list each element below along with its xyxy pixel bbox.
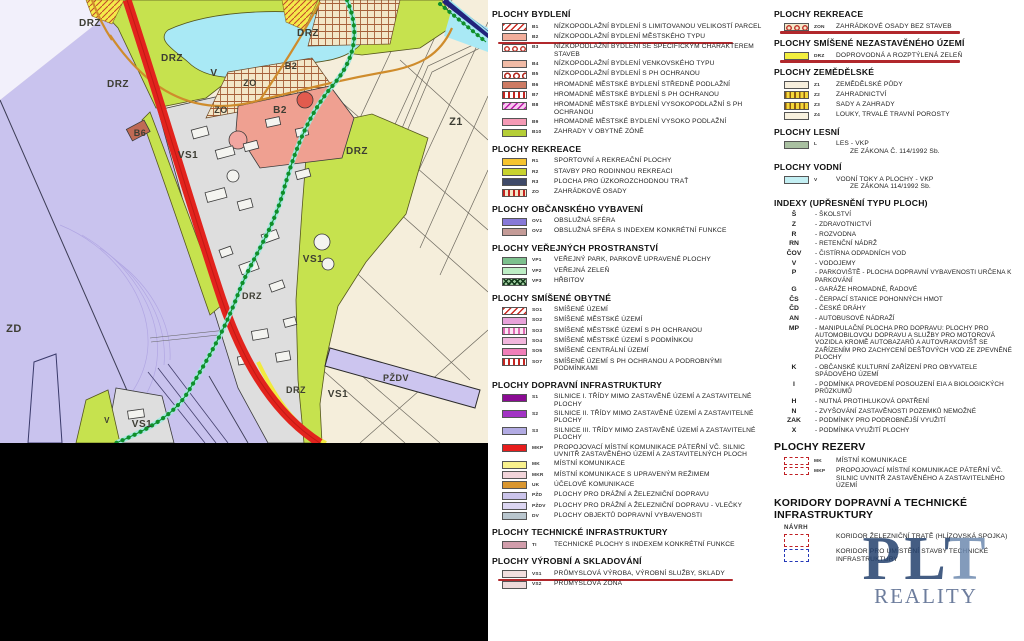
legend-item-OV2: OV2OBSLUŽNÁ SFÉRA S INDEXEM KONKRÉTNÍ FU… bbox=[502, 227, 764, 236]
legend-label: ZAHRÁDKOVÉ OSADY BEZ STAVEB bbox=[836, 23, 952, 31]
index-label: - PODMÍNKY PRO PODROBNĚJŠÍ VYUŽITÍ bbox=[815, 417, 946, 424]
legend-item-VP3: VP3HŘBITOV bbox=[502, 277, 764, 286]
legend-item-V: VVODNÍ TOKY A PLOCHY - VKPZE ZÁKONA 114/… bbox=[784, 176, 1018, 191]
legend-label: SMÍŠENÉ MĚSTSKÉ ÚZEMÍ S PH OCHRANOU bbox=[554, 327, 702, 335]
map-label-DRZ: DRZ bbox=[242, 291, 262, 301]
legend-index-item: N- ZVYŠOVÁNÍ ZASTAVĚNOSTI POZEMKŮ NEMOŽN… bbox=[780, 408, 1018, 415]
index-label: - PODMÍNKA VYUŽITÍ PLOCHY bbox=[815, 427, 909, 434]
legend-code: SO3 bbox=[532, 329, 549, 334]
legend-item-koridor: KORIDOR PRO UMÍSTĚNÍ STAVBY TECHNICKÉ IN… bbox=[784, 548, 1018, 563]
round-structure bbox=[297, 92, 313, 108]
legend-item-B8: B8HROMADNÉ MĚSTSKÉ BYDLENÍ VYSOKOPODLAŽN… bbox=[502, 101, 764, 116]
legend-item-B1: B1NÍZKOPODLAŽNÍ BYDLENÍ S LIMITOVANOU VE… bbox=[502, 23, 764, 32]
legend-column-1: PLOCHY BYDLENÍB1NÍZKOPODLAŽNÍ BYDLENÍ S … bbox=[488, 0, 768, 641]
legend-swatch bbox=[502, 481, 527, 489]
map-label-ZD: ZD bbox=[6, 323, 22, 335]
legend-label: LOUKY, TRVALÉ TRAVNÍ POROSTY bbox=[836, 111, 950, 119]
index-label: - VODOJEMY bbox=[815, 260, 856, 267]
legend-label: OBSLUŽNÁ SFÉRA S INDEXEM KONKRÉTNÍ FUNKC… bbox=[554, 227, 727, 235]
legend-item-ZO: ZOZAHRÁDKOVÉ OSADY bbox=[502, 188, 764, 197]
legend-code: Z4 bbox=[814, 113, 831, 118]
legend-code: OV1 bbox=[532, 219, 549, 224]
index-code: H bbox=[780, 398, 808, 405]
legend-note: NÁVRH bbox=[784, 524, 1018, 531]
index-label: - ROZVODNA bbox=[815, 231, 856, 238]
index-code: K bbox=[780, 364, 808, 379]
legend-swatch bbox=[784, 467, 809, 475]
legend-swatch bbox=[784, 549, 809, 562]
legend-swatch bbox=[502, 44, 527, 52]
legend-item-Z2: Z2ZAHRADNICTVÍ bbox=[784, 91, 1018, 100]
legend-index-item: X- PODMÍNKA VYUŽITÍ PLOCHY bbox=[780, 427, 1018, 434]
legend-code: TI bbox=[532, 543, 549, 548]
legend-swatch bbox=[502, 317, 527, 325]
legend-code: SO4 bbox=[532, 339, 549, 344]
index-code: Z bbox=[780, 221, 808, 228]
legend-label: PRŮMYSLOVÁ VÝROBA, VÝROBNÍ SLUŽBY, SKLAD… bbox=[554, 570, 725, 578]
index-label: - OBČANSKÉ KULTURNÍ ZAŘÍZENÍ PRO OBYVATE… bbox=[815, 364, 1015, 379]
legend-label: SMÍŠENÉ MĚSTSKÉ ÚZEMÍ bbox=[554, 316, 643, 324]
legend-code: SO7 bbox=[532, 360, 549, 365]
legend-item-B3: B3NÍZKOPODLAŽNÍ BYDLENÍ SE SPECIFICKÝM C… bbox=[502, 43, 764, 58]
legend-code: MKR bbox=[532, 473, 549, 478]
legend-item-DRZ: DRZDOPROVODNÁ A ROZPTÝLENÁ ZELEŇ bbox=[784, 52, 1018, 61]
legend-section-title: PLOCHY VODNÍ bbox=[774, 162, 1018, 172]
legend-label: ÚČELOVÉ KOMUNIKACE bbox=[554, 481, 634, 489]
legend-item-B4: B4NÍZKOPODLAŽNÍ BYDLENÍ VENKOVSKÉHO TYPU bbox=[502, 60, 764, 69]
legend-swatch bbox=[502, 444, 527, 452]
legend-code: B7 bbox=[532, 93, 549, 98]
legend-section: PLOCHY SMÍŠENÉ OBYTNÉSO1SMÍŠENÉ ÚZEMÍSO2… bbox=[492, 293, 764, 373]
legend-swatch bbox=[502, 410, 527, 418]
legend-swatch bbox=[784, 176, 809, 184]
legend-label: NÍZKOPODLAŽNÍ BYDLENÍ MĚSTSKÉHO TYPU bbox=[554, 33, 705, 41]
legend-swatch bbox=[502, 189, 527, 197]
index-label: - MANIPULAČNÍ PLOCHA PRO DOPRAVU: PLOCHY… bbox=[815, 325, 1015, 362]
legend-code: MKP bbox=[814, 469, 831, 474]
legend-label: ZAHRADNICTVÍ bbox=[836, 91, 887, 99]
legend-section: PLOCHY REKREACER1SPORTOVNÍ A REKREAČNÍ P… bbox=[492, 144, 764, 197]
legend-label: LES - VKPZE ZÁKONA Č. 114/1992 Sb. bbox=[836, 140, 940, 155]
legend-section-title: PLOCHY VÝROBNÍ A SKLADOVÁNÍ bbox=[492, 556, 764, 566]
legend-index-item: I- PODMÍNKA PROVEDENÍ POSOUZENÍ EIA A BI… bbox=[780, 381, 1018, 396]
map-label-VS1: VS1 bbox=[132, 419, 152, 430]
legend-swatch bbox=[784, 91, 809, 99]
index-code: X bbox=[780, 427, 808, 434]
legend-code: VP1 bbox=[532, 258, 549, 263]
legend-swatch bbox=[502, 541, 527, 549]
legend-section-title: PLOCHY BYDLENÍ bbox=[492, 9, 764, 19]
legend-label: SMÍŠENÉ CENTRÁLNÍ ÚZEMÍ bbox=[554, 347, 649, 355]
legend-index-item: H- NUTNÁ PROTIHLUKOVÁ OPATŘENÍ bbox=[780, 398, 1018, 405]
legend-swatch bbox=[502, 492, 527, 500]
legend-swatch bbox=[502, 358, 527, 366]
index-label: - PARKOVIŠTĚ - PLOCHA DOPRAVNÍ VYBAVENOS… bbox=[815, 269, 1015, 284]
legend-item-PŽDV: PŽDVPLOCHY PRO DRÁŽNÍ A ŽELEZNIČNÍ DOPRA… bbox=[502, 502, 764, 511]
index-label: - ZVYŠOVÁNÍ ZASTAVĚNOSTI POZEMKŮ NEMOŽNÉ bbox=[815, 408, 976, 415]
index-label: - ČERPACÍ STANICE POHONNÝCH HMOT bbox=[815, 296, 943, 303]
legend-index-item: Š- ŠKOLSTVÍ bbox=[780, 211, 1018, 218]
legend-label: HROMADNÉ MĚSTSKÉ BYDLENÍ STŘEDNĚ PODLAŽN… bbox=[554, 81, 730, 89]
legend-swatch bbox=[784, 23, 809, 31]
legend-index-item: P- PARKOVIŠTĚ - PLOCHA DOPRAVNÍ VYBAVENO… bbox=[780, 269, 1018, 284]
legend-swatch bbox=[502, 327, 527, 335]
legend-code: SO2 bbox=[532, 318, 549, 323]
legend-swatch bbox=[502, 570, 527, 578]
legend-section: INDEXY (UPŘESNĚNÍ TYPU PLOCH)Š- ŠKOLSTVÍ… bbox=[774, 198, 1018, 434]
legend-item-S2: S2SILNICE II. TŘÍDY MIMO ZASTAVĚNÉ ÚZEMÍ… bbox=[502, 410, 764, 425]
legend-item-S1: S1SILNICE I. TŘÍDY MIMO ZASTAVĚNÉ ÚZEMÍ … bbox=[502, 393, 764, 408]
legend-label: SMÍŠENÉ MĚSTSKÉ ÚZEMÍ S PODMÍNKOU bbox=[554, 337, 693, 345]
zoning-plan-screenshot: DRZDRZDRZDRZDRZDRZDRZVVZOZOB2B2B6Z1ZDVS1… bbox=[0, 0, 1024, 641]
legend-label: NÍZKOPODLAŽNÍ BYDLENÍ S PH OCHRANOU bbox=[554, 70, 700, 78]
legend-item-SO4: SO4SMÍŠENÉ MĚSTSKÉ ÚZEMÍ S PODMÍNKOU bbox=[502, 337, 764, 346]
legend-code: B1 bbox=[532, 25, 549, 30]
legend-index-item: ČS- ČERPACÍ STANICE POHONNÝCH HMOT bbox=[780, 296, 1018, 303]
legend-index-item: Z- ZDRAVOTNICTVÍ bbox=[780, 221, 1018, 228]
map-label-B6: B6 bbox=[134, 128, 147, 138]
legend-label: HŘBITOV bbox=[554, 277, 584, 285]
legend-item-MK: MKMÍSTNÍ KOMUNIKACE bbox=[784, 457, 1018, 466]
legend-code: PŽDV bbox=[532, 504, 549, 509]
legend-item-VP2: VP2VEŘEJNÁ ZELEŇ bbox=[502, 267, 764, 276]
map-label-B2: B2 bbox=[273, 105, 287, 116]
index-code: ZAK bbox=[780, 417, 808, 424]
legend-item-Z3: Z3SADY A ZAHRADY bbox=[784, 101, 1018, 110]
legend-label: SMÍŠENÉ ÚZEMÍ bbox=[554, 306, 608, 314]
legend-section: PLOCHY OBČANSKÉHO VYBAVENÍOV1OBSLUŽNÁ SF… bbox=[492, 204, 764, 236]
legend-section-title: PLOCHY REKREACE bbox=[492, 144, 764, 154]
legend-item-Z4: Z4LOUKY, TRVALÉ TRAVNÍ POROSTY bbox=[784, 111, 1018, 120]
legend-label: PROPOJOVACÍ MÍSTNÍ KOMUNIKACE PÁTEŘNÍ VČ… bbox=[554, 444, 764, 459]
legend-section: KORIDORY DOPRAVNÍ A TECHNICKÉ INFRASTRUK… bbox=[774, 497, 1018, 564]
legend-code: R3 bbox=[532, 180, 549, 185]
legend-section-title: PLOCHY REZERV bbox=[774, 441, 1018, 453]
legend-item-R3: R3PLOCHA PRO ÚZKOROZCHODNOU TRAŤ bbox=[502, 178, 764, 187]
legend-label: PLOCHY OBJEKTŮ DOPRAVNÍ VYBAVENOSTI bbox=[554, 512, 702, 520]
legend-label: ZAHRÁDKOVÉ OSADY bbox=[554, 188, 627, 196]
map-label-DRZ: DRZ bbox=[79, 18, 101, 29]
legend-code: SO5 bbox=[532, 349, 549, 354]
legend-item-S3: S3SILNICE III. TŘÍDY MIMO ZASTAVĚNÉ ÚZEM… bbox=[502, 427, 764, 442]
legend-code: VS2 bbox=[532, 582, 549, 587]
legend-label: DOPROVODNÁ A ROZPTÝLENÁ ZELEŇ bbox=[836, 52, 962, 60]
index-code: AN bbox=[780, 315, 808, 322]
legend-swatch bbox=[502, 168, 527, 176]
legend-code: B2 bbox=[532, 35, 549, 40]
legend-label: SMÍŠENÉ ÚZEMÍ S PH OCHRANOU A PODROBNÝMI… bbox=[554, 358, 764, 373]
legend-code: VP3 bbox=[532, 279, 549, 284]
legend-swatch bbox=[502, 581, 527, 589]
legend-index-item: G- GARÁŽE HROMADNÉ, ŘADOVÉ bbox=[780, 286, 1018, 293]
map-label-DRZ: DRZ bbox=[346, 146, 368, 157]
legend-label: HROMADNÉ MĚSTSKÉ BYDLENÍ S PH OCHRANOU bbox=[554, 91, 719, 99]
index-label: - RETENČNÍ NÁDRŽ bbox=[815, 240, 877, 247]
legend-section: PLOCHY DOPRAVNÍ INFRASTRUKTURYS1SILNICE … bbox=[492, 380, 764, 521]
legend-swatch bbox=[502, 394, 527, 402]
legend-label: VODNÍ TOKY A PLOCHY - VKPZE ZÁKONA 114/1… bbox=[836, 176, 933, 191]
legend-section: PLOCHY REKREACEZONZAHRÁDKOVÉ OSADY BEZ S… bbox=[774, 9, 1018, 31]
map-label-DRZ: DRZ bbox=[161, 53, 183, 64]
legend-code: B8 bbox=[532, 103, 549, 108]
legend-label: SILNICE II. TŘÍDY MIMO ZASTAVĚNÉ ÚZEMÍ A… bbox=[554, 410, 764, 425]
legend-swatch bbox=[502, 33, 527, 41]
legend-swatch bbox=[784, 52, 809, 60]
legend-swatch bbox=[502, 71, 527, 79]
legend-label: PROPOJOVACÍ MÍSTNÍ KOMUNIKACE PÁTEŘNÍ VČ… bbox=[836, 467, 1018, 490]
index-code: ČS bbox=[780, 296, 808, 303]
legend-section-title: PLOCHY VEŘEJNÝCH PROSTRANSTVÍ bbox=[492, 243, 764, 253]
legend-swatch bbox=[784, 141, 809, 149]
legend-swatch bbox=[502, 158, 527, 166]
legend-index-item: K- OBČANSKÉ KULTURNÍ ZAŘÍZENÍ PRO OBYVAT… bbox=[780, 364, 1018, 379]
legend-label: ZEMĚDĚLSKÉ PŮDY bbox=[836, 81, 903, 89]
legend-code: MK bbox=[814, 459, 831, 464]
index-code: V bbox=[780, 260, 808, 267]
index-code: R bbox=[780, 231, 808, 238]
legend-item-B5: B5NÍZKOPODLAŽNÍ BYDLENÍ S PH OCHRANOU bbox=[502, 70, 764, 79]
map-label-B2: B2 bbox=[285, 61, 298, 71]
legend-item-MK: MKMÍSTNÍ KOMUNIKACE bbox=[502, 460, 764, 469]
legend-code: R1 bbox=[532, 159, 549, 164]
legend-item-PŽD: PŽDPLOCHY PRO DRÁŽNÍ A ŽELEZNIČNÍ DOPRAV… bbox=[502, 491, 764, 500]
legend-label: SADY A ZAHRADY bbox=[836, 101, 895, 109]
legend-code: B3 bbox=[532, 45, 549, 50]
index-label: - ČESKÉ DRÁHY bbox=[815, 305, 866, 312]
legend-section-title: PLOCHY OBČANSKÉHO VYBAVENÍ bbox=[492, 204, 764, 214]
legend-item-koridor: KORIDOR ŽELEZNIČNÍ TRATĚ (HLÍZOVSKÁ SPOJ… bbox=[784, 533, 1018, 547]
legend-code: S3 bbox=[532, 429, 549, 434]
legend-item-OV1: OV1OBSLUŽNÁ SFÉRA bbox=[502, 217, 764, 226]
legend-code: Z3 bbox=[814, 103, 831, 108]
legend-swatch bbox=[502, 471, 527, 479]
legend-item-VS2: VS2PRŮMYSLOVÁ ZÓNA bbox=[502, 580, 764, 589]
legend-swatch bbox=[502, 91, 527, 99]
legend-swatch bbox=[502, 512, 527, 520]
legend-swatch bbox=[502, 427, 527, 435]
index-label: - AUTOBUSOVÉ NÁDRAŽÍ bbox=[815, 315, 895, 322]
legend-label: ZAHRADY V OBYTNÉ ZÓNĚ bbox=[554, 128, 644, 136]
legend-swatch bbox=[502, 267, 527, 275]
legend-item-SO2: SO2SMÍŠENÉ MĚSTSKÉ ÚZEMÍ bbox=[502, 316, 764, 325]
legend-code: DRZ bbox=[814, 54, 831, 59]
legend-index-item: RN- RETENČNÍ NÁDRŽ bbox=[780, 240, 1018, 247]
index-code: I bbox=[780, 381, 808, 396]
legend-label: NÍZKOPODLAŽNÍ BYDLENÍ S LIMITOVANOU VELI… bbox=[554, 23, 762, 31]
legend-index-item: MP- MANIPULAČNÍ PLOCHA PRO DOPRAVU: PLOC… bbox=[780, 325, 1018, 362]
legend-item-B6: B6HROMADNÉ MĚSTSKÉ BYDLENÍ STŘEDNĚ PODLA… bbox=[502, 81, 764, 90]
legend-item-DV: DVPLOCHY OBJEKTŮ DOPRAVNÍ VYBAVENOSTI bbox=[502, 512, 764, 521]
legend-column-2: PLOCHY REKREACEZONZAHRÁDKOVÉ OSADY BEZ S… bbox=[768, 0, 1024, 641]
legend-code: PŽD bbox=[532, 493, 549, 498]
legend-code: Z1 bbox=[814, 83, 831, 88]
legend-item-SO3: SO3SMÍŠENÉ MĚSTSKÉ ÚZEMÍ S PH OCHRANOU bbox=[502, 327, 764, 336]
map-label-PŽDV: PŽDV bbox=[383, 372, 409, 383]
legend-swatch bbox=[502, 102, 527, 110]
legend-item-R1: R1SPORTOVNÍ A REKREAČNÍ PLOCHY bbox=[502, 157, 764, 166]
legend-label: PLOCHA PRO ÚZKOROZCHODNOU TRAŤ bbox=[554, 178, 688, 186]
legend-code: VS1 bbox=[532, 572, 549, 577]
legend-label: SILNICE III. TŘÍDY MIMO ZASTAVĚNÉ ÚZEMÍ … bbox=[554, 427, 764, 442]
legend-label: TECHNICKÉ PLOCHY S INDEXEM KONKRÉTNÍ FUN… bbox=[554, 541, 735, 549]
index-code: RN bbox=[780, 240, 808, 247]
legend-code: ZO bbox=[532, 190, 549, 195]
index-code: MP bbox=[780, 325, 808, 362]
legend-section: PLOCHY VEŘEJNÝCH PROSTRANSTVÍVP1VEŘEJNÝ … bbox=[492, 243, 764, 286]
legend-code: V bbox=[814, 178, 831, 183]
legend-swatch bbox=[784, 81, 809, 89]
legend-label: VEŘEJNÁ ZELEŇ bbox=[554, 267, 609, 275]
legend-swatch bbox=[784, 457, 809, 465]
legend-swatch bbox=[502, 81, 527, 89]
legend-label: OBSLUŽNÁ SFÉRA bbox=[554, 217, 615, 225]
legend-code: L bbox=[814, 142, 831, 147]
legend-item-TI: TITECHNICKÉ PLOCHY S INDEXEM KONKRÉTNÍ F… bbox=[502, 541, 764, 550]
legend-item-UK: UKÚČELOVÉ KOMUNIKACE bbox=[502, 481, 764, 490]
legend-section-title: PLOCHY TECHNICKÉ INFRASTRUKTURY bbox=[492, 527, 764, 537]
legend-swatch bbox=[502, 218, 527, 226]
legend-item-SO1: SO1SMÍŠENÉ ÚZEMÍ bbox=[502, 306, 764, 315]
legend-code: S2 bbox=[532, 412, 549, 417]
legend-item-ZON: ZONZAHRÁDKOVÉ OSADY BEZ STAVEB bbox=[784, 23, 1018, 32]
legend-label: PRŮMYSLOVÁ ZÓNA bbox=[554, 580, 622, 588]
legend-code: B4 bbox=[532, 62, 549, 67]
index-code: ČOV bbox=[780, 250, 808, 257]
legend-section-title: PLOCHY LESNÍ bbox=[774, 127, 1018, 137]
legend-swatch bbox=[502, 278, 527, 286]
legend-code: S1 bbox=[532, 395, 549, 400]
legend-item-L: LLES - VKPZE ZÁKONA Č. 114/1992 Sb. bbox=[784, 140, 1018, 155]
index-label: - ŠKOLSTVÍ bbox=[815, 211, 851, 218]
legend-section: PLOCHY LESNÍLLES - VKPZE ZÁKONA Č. 114/1… bbox=[774, 127, 1018, 156]
legend-swatch bbox=[502, 178, 527, 186]
legend-code: B5 bbox=[532, 72, 549, 77]
legend-swatch bbox=[502, 461, 527, 469]
legend-section: PLOCHY VÝROBNÍ A SKLADOVÁNÍVS1PRŮMYSLOVÁ… bbox=[492, 556, 764, 588]
legend-section-title: INDEXY (UPŘESNĚNÍ TYPU PLOCH) bbox=[774, 198, 1018, 208]
legend-item-R2: R2STAVBY PRO RODINNOU REKREACI bbox=[502, 168, 764, 177]
legend-swatch bbox=[502, 257, 527, 265]
legend-code: MK bbox=[532, 462, 549, 467]
index-label: - NUTNÁ PROTIHLUKOVÁ OPATŘENÍ bbox=[815, 398, 929, 405]
index-code: N bbox=[780, 408, 808, 415]
legend-code: ZON bbox=[814, 25, 831, 30]
legend-label: MÍSTNÍ KOMUNIKACE S UPRAVENÝM REŽIMEM bbox=[554, 471, 710, 479]
legend-label: SILNICE I. TŘÍDY MIMO ZASTAVĚNÉ ÚZEMÍ A … bbox=[554, 393, 764, 408]
legend-index-item: AN- AUTOBUSOVÉ NÁDRAŽÍ bbox=[780, 315, 1018, 322]
legend-item-VP1: VP1VEŘEJNÝ PARK, PARKOVĚ UPRAVENÉ PLOCHY bbox=[502, 256, 764, 265]
legend-swatch bbox=[502, 23, 527, 31]
legend-swatch bbox=[502, 307, 527, 315]
map-label-VS1: VS1 bbox=[178, 150, 198, 161]
legend-item-B9: B9HROMADNÉ MĚSTSKÉ BYDLENÍ VYSOKO PODLAŽ… bbox=[502, 118, 764, 127]
map-label-V: V bbox=[104, 416, 110, 425]
legend-label: PLOCHY PRO DRÁŽNÍ A ŽELEZNIČNÍ DOPRAVU bbox=[554, 491, 709, 499]
legend-swatch bbox=[502, 118, 527, 126]
legend-swatch bbox=[784, 534, 809, 547]
map-label-DRZ: DRZ bbox=[297, 28, 319, 39]
legend-section: PLOCHY TECHNICKÉ INFRASTRUKTURYTITECHNIC… bbox=[492, 527, 764, 549]
legend-section-title: PLOCHY DOPRAVNÍ INFRASTRUKTURY bbox=[492, 380, 764, 390]
legend-swatch bbox=[502, 129, 527, 137]
legend-section: PLOCHY VODNÍVVODNÍ TOKY A PLOCHY - VKPZE… bbox=[774, 162, 1018, 191]
index-code: G bbox=[780, 286, 808, 293]
legend-code: SO1 bbox=[532, 308, 549, 313]
legend-label: KORIDOR ŽELEZNIČNÍ TRATĚ (HLÍZOVSKÁ SPOJ… bbox=[836, 533, 1007, 541]
legend-code: OV2 bbox=[532, 229, 549, 234]
legend-code: B9 bbox=[532, 120, 549, 125]
map-label-VS1: VS1 bbox=[328, 389, 348, 400]
legend-label: SPORTOVNÍ A REKREAČNÍ PLOCHY bbox=[554, 157, 672, 165]
legend-label: NÍZKOPODLAŽNÍ BYDLENÍ SE SPECIFICKÝM CHA… bbox=[554, 43, 764, 58]
legend-swatch bbox=[784, 102, 809, 110]
legend-index-item: V- VODOJEMY bbox=[780, 260, 1018, 267]
index-code: P bbox=[780, 269, 808, 284]
index-code: Š bbox=[780, 211, 808, 218]
legend-item-B7: B7HROMADNÉ MĚSTSKÉ BYDLENÍ S PH OCHRANOU bbox=[502, 91, 764, 100]
legend-label: MÍSTNÍ KOMUNIKACE bbox=[554, 460, 625, 468]
map-label-DRZ: DRZ bbox=[107, 79, 129, 90]
legend-label: PLOCHY PRO DRÁŽNÍ A ŽELEZNIČNÍ DOPRAVU -… bbox=[554, 502, 742, 510]
legend-item-MKP: MKPPROPOJOVACÍ MÍSTNÍ KOMUNIKACE PÁTEŘNÍ… bbox=[502, 444, 764, 459]
legend-code: DV bbox=[532, 514, 549, 519]
legend-item-SO7: SO7SMÍŠENÉ ÚZEMÍ S PH OCHRANOU A PODROBN… bbox=[502, 358, 764, 373]
map-label-ZO: ZO bbox=[243, 78, 257, 88]
legend-index-item: ČOV- ČISTÍRNA ODPADNÍCH VOD bbox=[780, 250, 1018, 257]
legend-section-title: PLOCHY REKREACE bbox=[774, 9, 1018, 19]
legend-code: B10 bbox=[532, 130, 549, 135]
legend-section: PLOCHY SMÍŠENÉ NEZASTAVĚNÉHO ÚZEMÍDRZDOP… bbox=[774, 38, 1018, 60]
index-code: ČD bbox=[780, 305, 808, 312]
legend-code: B6 bbox=[532, 83, 549, 88]
legend-code: VP2 bbox=[532, 269, 549, 274]
legend-item-MKR: MKRMÍSTNÍ KOMUNIKACE S UPRAVENÝM REŽIMEM bbox=[502, 471, 764, 480]
legend-label: NÍZKOPODLAŽNÍ BYDLENÍ VENKOVSKÉHO TYPU bbox=[554, 60, 715, 68]
legend-swatch bbox=[784, 112, 809, 120]
legend-swatch bbox=[502, 502, 527, 510]
legend-section-title: PLOCHY SMÍŠENÉ OBYTNÉ bbox=[492, 293, 764, 303]
index-label: - ČISTÍRNA ODPADNÍCH VOD bbox=[815, 250, 906, 257]
legend-label: HROMADNÉ MĚSTSKÉ BYDLENÍ VYSOKOPODLAŽNÍ … bbox=[554, 101, 764, 116]
legend-code: UK bbox=[532, 483, 549, 488]
zoning-map: DRZDRZDRZDRZDRZDRZDRZVVZOZOB2B2B6Z1ZDVS1… bbox=[0, 0, 488, 443]
legend-index-item: R- ROZVODNA bbox=[780, 231, 1018, 238]
legend-swatch bbox=[502, 228, 527, 236]
index-label: - ZDRAVOTNICTVÍ bbox=[815, 221, 871, 228]
legend-section-title: PLOCHY SMÍŠENÉ NEZASTAVĚNÉHO ÚZEMÍ bbox=[774, 38, 1018, 48]
legend-item-B2: B2NÍZKOPODLAŽNÍ BYDLENÍ MĚSTSKÉHO TYPU bbox=[502, 33, 764, 42]
legend-item-VS1: VS1PRŮMYSLOVÁ VÝROBA, VÝROBNÍ SLUŽBY, SK… bbox=[502, 570, 764, 579]
legend-section-title: KORIDORY DOPRAVNÍ A TECHNICKÉ INFRASTRUK… bbox=[774, 497, 1018, 521]
map-label-VS1: VS1 bbox=[303, 254, 323, 265]
legend-item-MKP: MKPPROPOJOVACÍ MÍSTNÍ KOMUNIKACE PÁTEŘNÍ… bbox=[784, 467, 1018, 490]
legend-swatch bbox=[502, 348, 527, 356]
legend-swatch bbox=[502, 337, 527, 345]
map-label-V: V bbox=[210, 68, 217, 79]
legend-code: Z2 bbox=[814, 93, 831, 98]
index-label: - GARÁŽE HROMADNÉ, ŘADOVÉ bbox=[815, 286, 917, 293]
map-label-DRZ: DRZ bbox=[286, 385, 306, 395]
map-canvas: DRZDRZDRZDRZDRZDRZDRZVVZOZOB2B2B6Z1ZDVS1… bbox=[0, 0, 488, 641]
legend-label: MÍSTNÍ KOMUNIKACE bbox=[836, 457, 907, 465]
legend-index-item: ZAK- PODMÍNKY PRO PODROBNĚJŠÍ VYUŽITÍ bbox=[780, 417, 1018, 424]
legend-label: KORIDOR PRO UMÍSTĚNÍ STAVBY TECHNICKÉ IN… bbox=[836, 548, 1018, 563]
index-label: - PODMÍNKA PROVEDENÍ POSOUZENÍ EIA A BIO… bbox=[815, 381, 1015, 396]
legend-section: PLOCHY BYDLENÍB1NÍZKOPODLAŽNÍ BYDLENÍ S … bbox=[492, 9, 764, 137]
legend-code: R2 bbox=[532, 170, 549, 175]
legend-label: HROMADNÉ MĚSTSKÉ BYDLENÍ VYSOKO PODLAŽNÍ bbox=[554, 118, 726, 126]
map-label-Z1: Z1 bbox=[449, 116, 463, 128]
